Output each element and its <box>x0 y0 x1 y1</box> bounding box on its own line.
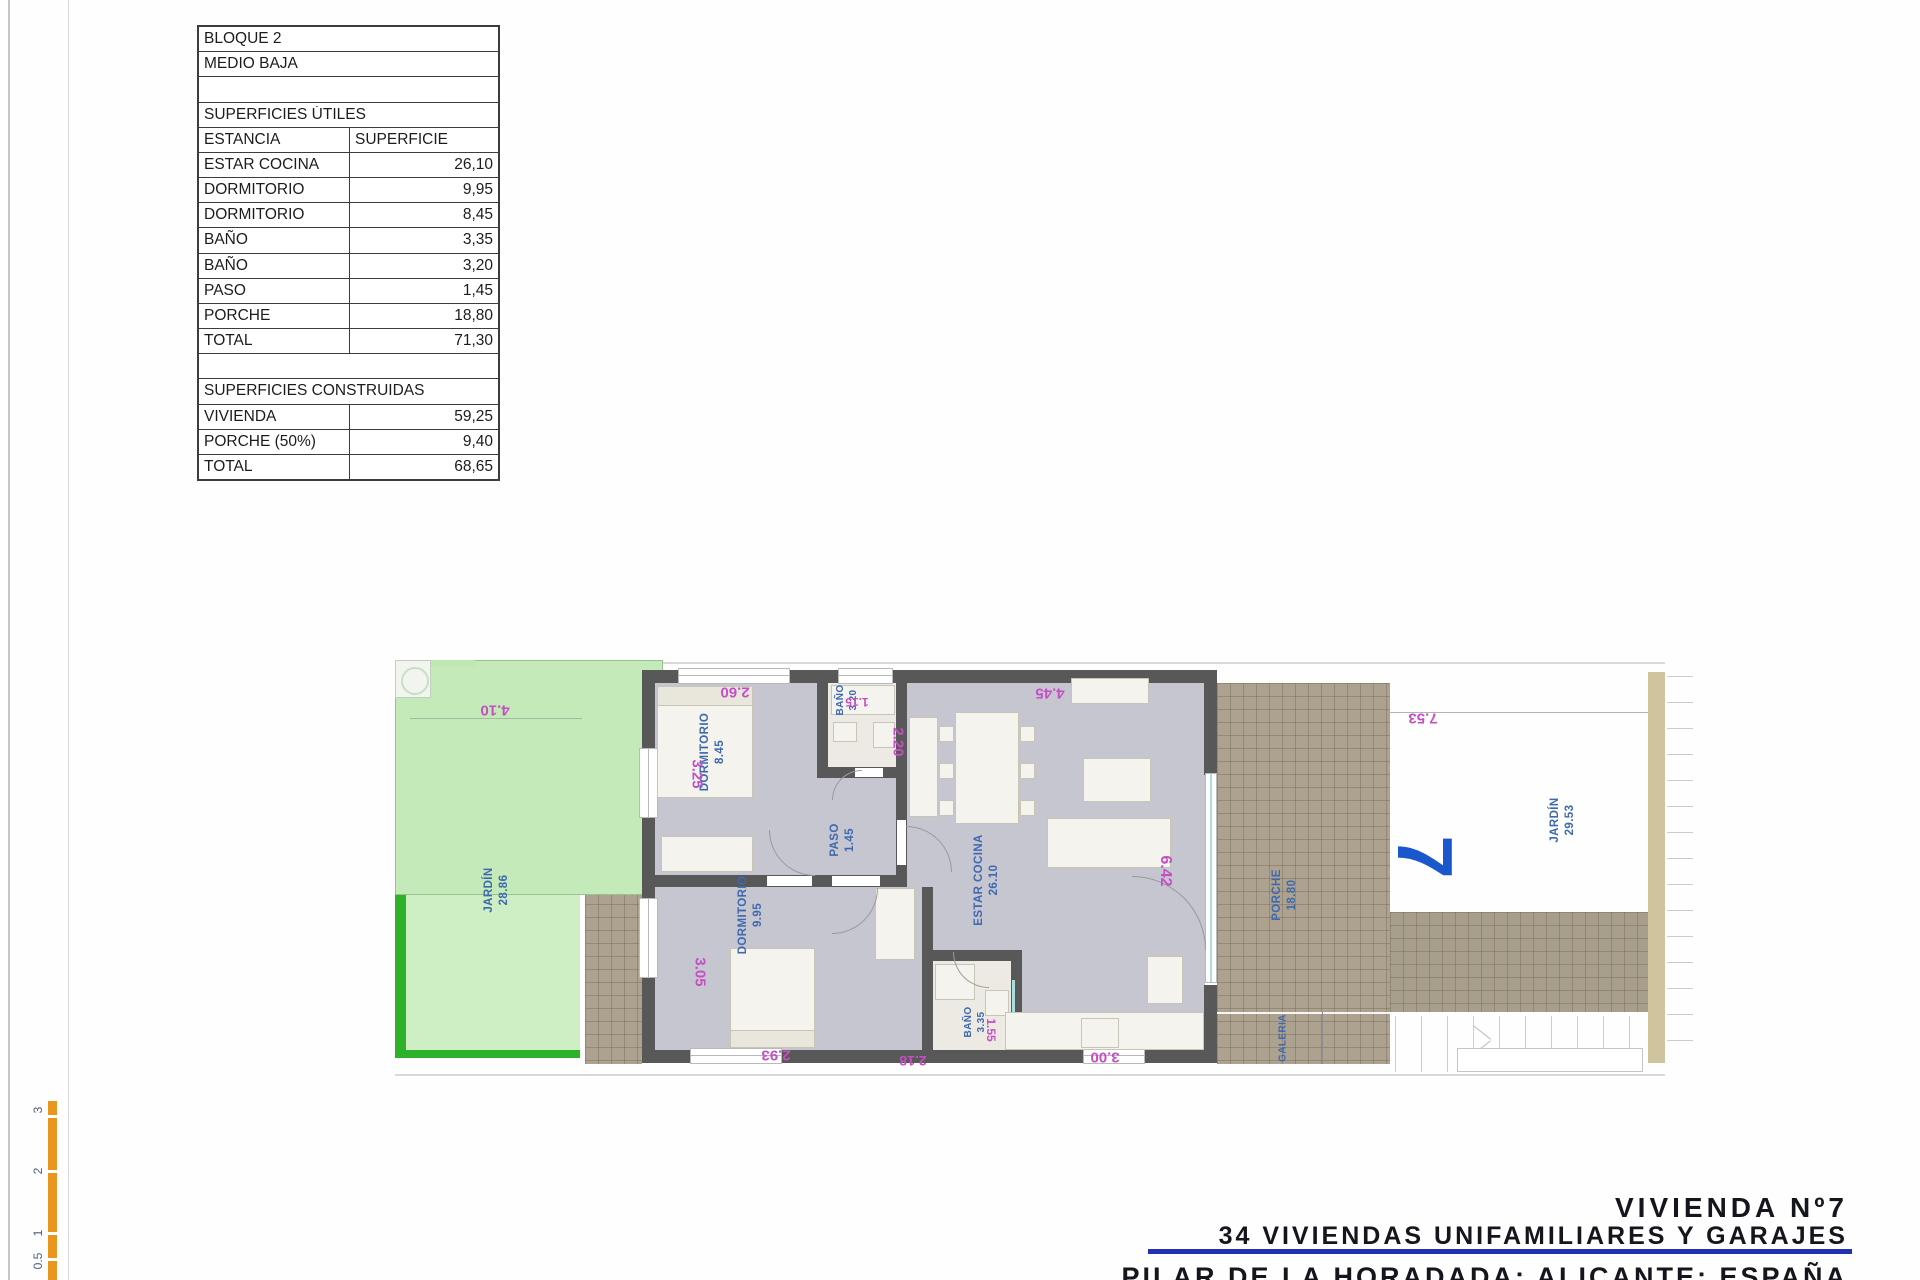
title-underline <box>1148 1249 1852 1254</box>
floor-plan: 7 ACS JARDÍN28.86DORMITORIO8.45BAÑO3.20P… <box>395 660 1700 1082</box>
furniture <box>1047 818 1171 868</box>
scale-tick <box>48 1258 57 1261</box>
table-row: MEDIO BAJA <box>199 51 498 76</box>
sheet-title-location: PILAR DE LA HORADADA; ALICANTE; ESPAÑA <box>1122 1262 1848 1280</box>
furniture <box>1020 726 1035 742</box>
room-label-jardin-left: JARDÍN28.86 <box>482 867 512 912</box>
table-row: TOTAL68,65 <box>199 454 498 479</box>
sheet-title-project: 34 VIVIENDAS UNIFAMILIARES Y GARAJES <box>1219 1222 1848 1251</box>
scale-label: 2 <box>31 1168 45 1175</box>
dimension-label: 6.42 <box>1156 855 1174 886</box>
scale-label: 1 <box>31 1230 45 1237</box>
room-label-paso: PASO1.45 <box>828 823 858 856</box>
stair-line <box>1667 728 1693 729</box>
sheet-title-unit: VIVIENDA Nº7 <box>1615 1192 1848 1224</box>
door-opening <box>897 820 906 865</box>
room-label-dormitorio-2: DORMITORIO9.95 <box>736 876 766 955</box>
stair-line <box>1667 962 1693 963</box>
stair-line <box>1667 910 1693 911</box>
scale-tick <box>48 1232 57 1235</box>
cell-estancia: PASO <box>199 279 350 303</box>
scale-tick <box>48 1115 57 1118</box>
cell-superficie: 9,95 <box>350 181 498 199</box>
table-row <box>199 76 498 101</box>
cell-superficie: 3,20 <box>350 257 498 275</box>
cell-estancia: VIVIENDA <box>199 405 350 429</box>
table-row: ESTANCIASUPERFICIE <box>199 127 498 152</box>
boundary-strip <box>1648 672 1665 1063</box>
unit-number-label: 7 <box>1386 835 1464 878</box>
stair-line <box>1395 1016 1396 1072</box>
furniture <box>1083 758 1151 802</box>
table-row: BLOQUE 2 <box>199 27 498 51</box>
plan-bottom-line <box>395 1074 1665 1076</box>
stair-landing <box>1457 1048 1643 1072</box>
door-opening <box>832 876 880 886</box>
dimension-label: 4.45 <box>1035 685 1064 702</box>
stair-line <box>1667 676 1693 677</box>
stair-line <box>1667 1040 1693 1041</box>
furniture <box>1020 800 1035 816</box>
table-row: ESTAR COCINA26,10 <box>199 152 498 177</box>
glass-door <box>1205 773 1217 983</box>
room-label-porche: PORCHE18.80 <box>1270 869 1300 921</box>
cell-superficie: 68,65 <box>350 458 498 476</box>
furniture <box>1071 678 1149 704</box>
table-row: PORCHE18,80 <box>199 303 498 328</box>
stair-line <box>1667 702 1693 703</box>
furniture <box>939 726 954 742</box>
cell-estancia: DORMITORIO <box>199 178 350 202</box>
dimension-label: 2.60 <box>720 684 749 701</box>
stair-line <box>1667 806 1693 807</box>
dimension-label: 3.00 <box>1090 1049 1119 1066</box>
cell-estancia: ESTAR COCINA <box>199 153 350 177</box>
stair-line <box>1447 1016 1448 1072</box>
wall <box>817 683 828 778</box>
dimension-label: 7.53 <box>1408 710 1437 727</box>
surfaces-table: BLOQUE 2MEDIO BAJASUPERFICIES ÚTILESESTA… <box>197 25 500 481</box>
stair-line <box>1667 780 1693 781</box>
scale-label: 0.5 <box>31 1253 45 1270</box>
dimension-label: 1.55 <box>984 1018 998 1041</box>
dimension-label: 3.25 <box>689 759 706 788</box>
cell-superficie: 26,10 <box>350 156 498 174</box>
scale-label: 3 <box>31 1107 45 1114</box>
door-opening <box>767 876 812 886</box>
scale-bar <box>48 1101 57 1280</box>
stair-line <box>1667 988 1693 989</box>
cell-estancia: TOTAL <box>199 455 350 479</box>
cell-estancia: ESTANCIA <box>199 128 350 152</box>
furniture <box>939 763 954 779</box>
galeria-divider <box>1217 1012 1390 1014</box>
table-row: SUPERFICIES CONSTRUIDAS <box>199 378 498 403</box>
cell-superficie: SUPERFICIE <box>350 131 498 149</box>
furniture <box>661 836 753 872</box>
cell-estancia: PORCHE <box>199 304 350 328</box>
table-row: SUPERFICIES ÚTILES <box>199 102 498 127</box>
furniture <box>1081 1018 1119 1048</box>
furniture <box>909 717 938 817</box>
cell-superficie: 9,40 <box>350 433 498 451</box>
furniture <box>939 800 954 816</box>
table-row <box>199 353 498 378</box>
cell-superficie: 3,35 <box>350 231 498 249</box>
dimension-label: 1.15 <box>845 695 868 709</box>
dimension-label: 2.20 <box>890 727 907 756</box>
stair-line <box>1421 1016 1422 1072</box>
room-label-galeria: GALERIA <box>1277 1014 1290 1062</box>
cell-estancia: BAÑO <box>199 254 350 278</box>
furniture <box>1147 956 1183 1004</box>
stair-line <box>1667 754 1693 755</box>
window <box>639 748 658 818</box>
wall <box>922 887 933 1063</box>
dimension-label: 2.18 <box>899 1053 926 1069</box>
table-row: VIVIENDA59,25 <box>199 404 498 429</box>
table-row: DORMITORIO9,95 <box>199 177 498 202</box>
stair-line <box>1667 1014 1693 1015</box>
stair-line <box>1667 884 1693 885</box>
furniture <box>875 888 915 960</box>
sheet-frame-line <box>68 0 69 1280</box>
galeria-line <box>1322 1012 1323 1064</box>
wall <box>642 670 655 1063</box>
drawing-sheet: BLOQUE 2MEDIO BAJASUPERFICIES ÚTILESESTA… <box>0 0 1920 1280</box>
cell-superficie: 59,25 <box>350 408 498 426</box>
cell-estancia: DORMITORIO <box>199 203 350 227</box>
cell-estancia: PORCHE (50%) <box>199 430 350 454</box>
cell-superficie: 1,45 <box>350 282 498 300</box>
washing-machine <box>395 660 431 698</box>
stair-arrow <box>1473 1025 1491 1040</box>
table-row: PORCHE (50%)9,40 <box>199 429 498 454</box>
dimension-label: 2.93 <box>761 1047 790 1064</box>
cell-estancia: BAÑO <box>199 228 350 252</box>
table-row: PASO1,45 <box>199 278 498 303</box>
wall <box>1204 670 1217 775</box>
room-label-estar-cocina: ESTAR COCINA26.10 <box>972 834 1002 925</box>
cell-superficie: 18,80 <box>350 307 498 325</box>
table-row: BAÑO3,20 <box>199 253 498 278</box>
stair-line <box>1667 832 1693 833</box>
wall <box>1204 985 1217 1063</box>
sheet-frame-line <box>8 0 10 1280</box>
room-label-jardin-right: JARDÍN29.53 <box>1548 797 1578 842</box>
table-cell: MEDIO BAJA <box>199 55 498 73</box>
cell-superficie: 8,45 <box>350 206 498 224</box>
cell-superficie: 71,30 <box>350 332 498 350</box>
table-row: DORMITORIO8,45 <box>199 202 498 227</box>
table-cell: BLOQUE 2 <box>199 30 498 48</box>
table-cell: SUPERFICIES ÚTILES <box>199 106 498 124</box>
window <box>838 668 893 684</box>
bed-pillow <box>730 1030 815 1048</box>
table-row: BAÑO3,35 <box>199 227 498 252</box>
cell-estancia: TOTAL <box>199 329 350 353</box>
dimension-label: 3.05 <box>692 957 709 986</box>
furniture <box>833 722 857 742</box>
table-row: TOTAL71,30 <box>199 328 498 353</box>
stair-line <box>1667 936 1693 937</box>
window <box>639 898 658 978</box>
table-cell: SUPERFICIES CONSTRUIDAS <box>199 382 498 400</box>
stair-line <box>1667 858 1693 859</box>
window <box>678 668 790 684</box>
scale-tick <box>48 1170 57 1173</box>
garden-right <box>395 660 663 895</box>
furniture <box>1020 763 1035 779</box>
furniture <box>955 712 1019 824</box>
tiled-paving-east <box>1390 912 1648 1012</box>
tiled-paving-porch <box>1217 683 1390 1064</box>
dimension-label: 4.10 <box>480 702 509 719</box>
